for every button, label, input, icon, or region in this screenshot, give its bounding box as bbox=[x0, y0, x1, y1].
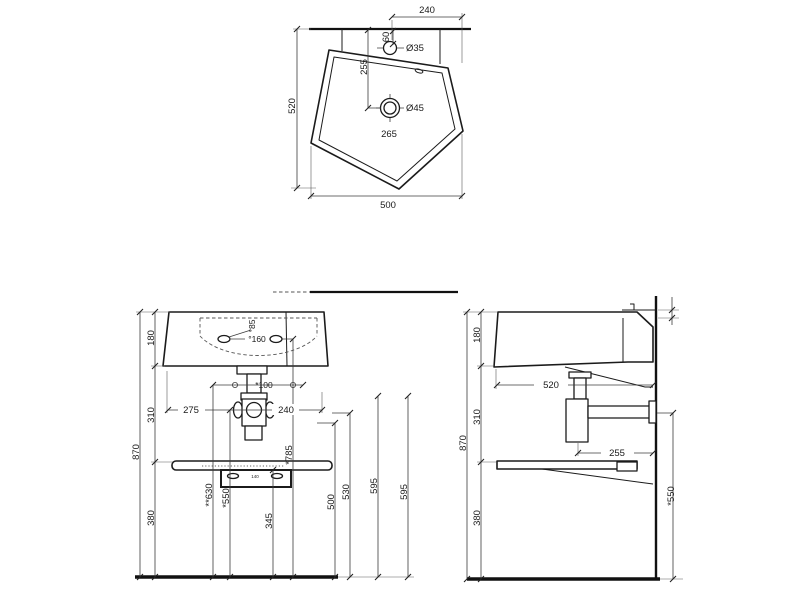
dim-top-tap-diameter: Ø35 bbox=[406, 43, 424, 54]
dim-front-345: 345 bbox=[264, 513, 275, 529]
dim-front-595-a: 595 bbox=[369, 478, 380, 494]
dim-front-530: 530 bbox=[341, 484, 352, 500]
dim-front-240: 240 bbox=[278, 405, 294, 416]
dim-top-500: 500 bbox=[380, 200, 396, 211]
dim-front-630: **630 bbox=[204, 483, 215, 506]
dim-lines bbox=[297, 17, 462, 196]
basin-outer-outline bbox=[311, 50, 463, 189]
dim-front-785: *785 bbox=[284, 445, 295, 465]
tap-hole-right bbox=[270, 336, 282, 343]
wall-bracket-step bbox=[622, 304, 656, 310]
dim-side-520: 520 bbox=[543, 380, 559, 391]
dim-front-140: 140 bbox=[251, 474, 259, 479]
overflow-hole bbox=[415, 68, 424, 74]
dim-front-500: 500 bbox=[326, 494, 337, 510]
extension-lines bbox=[291, 13, 462, 199]
trap-cylinder-side bbox=[566, 399, 588, 442]
drain-flange bbox=[237, 366, 267, 374]
wall-outlet-flange bbox=[649, 401, 656, 423]
dim-side-550: *550 bbox=[666, 486, 677, 506]
page: 240 60 Ø35 255 Ø45 265 520 500 bbox=[0, 0, 800, 600]
basin-inner-outline bbox=[319, 57, 455, 181]
dim-front-180: 180 bbox=[146, 330, 157, 346]
dim-front-160: °160 bbox=[248, 334, 266, 344]
dim-side-870: 870 bbox=[458, 435, 469, 451]
dim-top-240: 240 bbox=[419, 5, 435, 16]
dim-side-310: 310 bbox=[472, 409, 483, 425]
dim-front-275: 275 bbox=[183, 405, 199, 416]
shelf-front bbox=[172, 461, 332, 470]
dim-top-520: 520 bbox=[287, 98, 298, 114]
dim-front-595-b: 595 bbox=[399, 484, 410, 500]
tailpipe-side bbox=[574, 378, 586, 399]
basin-side-outline bbox=[494, 312, 653, 367]
trap-lower-tube bbox=[245, 426, 262, 440]
basin-front-outline bbox=[163, 312, 328, 366]
side-view: 180 310 870 380 520 255 *550 bbox=[458, 296, 683, 582]
dim-front-550: *550 bbox=[221, 488, 232, 508]
dim-side-180: 180 bbox=[472, 327, 483, 343]
dim-front-100: *100 bbox=[255, 380, 273, 390]
dim-front-870: 870 bbox=[131, 444, 142, 460]
shelf-side bbox=[497, 461, 637, 469]
drain-hole-inner bbox=[384, 102, 396, 114]
technical-drawing-canvas: 240 60 Ø35 255 Ø45 265 520 500 bbox=[0, 0, 800, 600]
dim-top-255: 255 bbox=[359, 59, 370, 75]
drain-flange-side bbox=[569, 372, 591, 378]
dim-front-380: 380 bbox=[146, 510, 157, 526]
dim-side-255: 255 bbox=[609, 448, 625, 459]
bracket-slot-left bbox=[228, 474, 239, 479]
dim-front-310: 310 bbox=[146, 407, 157, 423]
dim-ticks bbox=[137, 309, 411, 580]
shelf-wall-tab bbox=[617, 462, 637, 471]
dim-front-85: °85 bbox=[247, 319, 257, 332]
tap-hole bbox=[384, 42, 397, 55]
top-view: 240 60 Ø35 255 Ø45 265 520 500 bbox=[287, 5, 471, 211]
dim-top-drain-diameter: Ø45 bbox=[406, 103, 424, 114]
waste-pipe-side bbox=[588, 406, 650, 418]
dim-top-60: 60 bbox=[381, 32, 392, 43]
front-view: 180 310 870 380 °85 °160 *100 275 240 **… bbox=[131, 292, 458, 580]
tap-hole-left bbox=[218, 336, 230, 343]
dim-top-265: 265 bbox=[381, 129, 397, 140]
dim-lines bbox=[140, 312, 408, 577]
dim-side-380: 380 bbox=[472, 510, 483, 526]
